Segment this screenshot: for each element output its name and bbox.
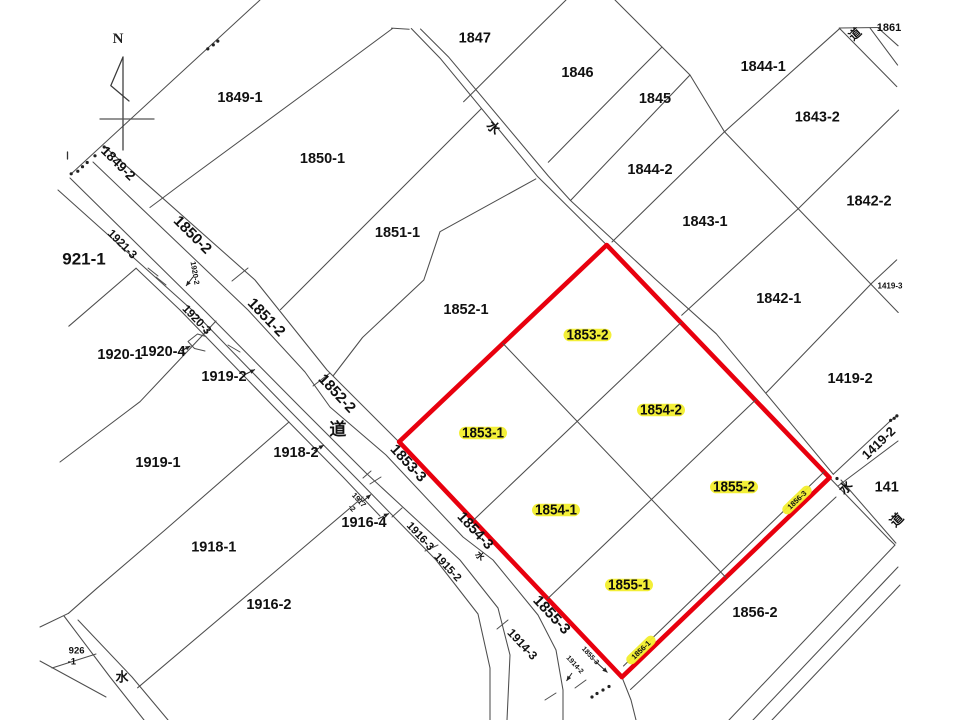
- svg-text:1861: 1861: [877, 22, 901, 34]
- svg-text:1842-1: 1842-1: [756, 291, 801, 307]
- svg-text:道: 道: [329, 419, 346, 439]
- svg-text:1846: 1846: [561, 65, 593, 81]
- svg-text:1844-2: 1844-2: [627, 162, 672, 178]
- svg-text:1842-2: 1842-2: [846, 193, 891, 209]
- svg-text:1845: 1845: [639, 91, 671, 107]
- svg-text:141: 141: [875, 479, 899, 495]
- svg-text:1850-1: 1850-1: [300, 151, 345, 167]
- svg-text:1919-1: 1919-1: [135, 455, 180, 471]
- svg-text:1919-2: 1919-2: [201, 369, 246, 385]
- svg-text:1847: 1847: [459, 31, 491, 47]
- svg-text:921-1: 921-1: [62, 250, 105, 269]
- svg-text:1920-1: 1920-1: [97, 347, 142, 363]
- svg-text:1853-1: 1853-1: [462, 425, 504, 442]
- svg-text:1849-1: 1849-1: [217, 90, 262, 106]
- svg-text:1854-2: 1854-2: [640, 402, 682, 419]
- svg-text:水: 水: [115, 670, 129, 685]
- svg-text:1419-3: 1419-3: [878, 282, 903, 291]
- svg-text:1916-2: 1916-2: [246, 597, 291, 613]
- svg-text:1918-2: 1918-2: [273, 445, 318, 461]
- svg-text:1419-2: 1419-2: [828, 371, 873, 387]
- svg-text:1920-4: 1920-4: [140, 344, 185, 360]
- svg-text:1855-2: 1855-2: [713, 479, 755, 496]
- svg-text:1856-2: 1856-2: [732, 605, 777, 621]
- svg-text:1916-4: 1916-4: [341, 515, 386, 531]
- svg-text:1855-1: 1855-1: [608, 577, 650, 594]
- svg-text:1843-2: 1843-2: [795, 109, 840, 125]
- svg-text:1854-1: 1854-1: [535, 502, 577, 519]
- svg-text:1843-1: 1843-1: [682, 214, 727, 230]
- svg-text:1851-1: 1851-1: [375, 225, 420, 241]
- svg-text:N: N: [113, 31, 124, 47]
- svg-text:1852-1: 1852-1: [443, 302, 488, 318]
- svg-text:926: 926: [69, 646, 85, 657]
- svg-text:-1: -1: [68, 657, 77, 668]
- svg-text:1853-2: 1853-2: [567, 327, 609, 344]
- svg-text:1844-1: 1844-1: [741, 59, 786, 75]
- svg-text:1918-1: 1918-1: [191, 540, 236, 556]
